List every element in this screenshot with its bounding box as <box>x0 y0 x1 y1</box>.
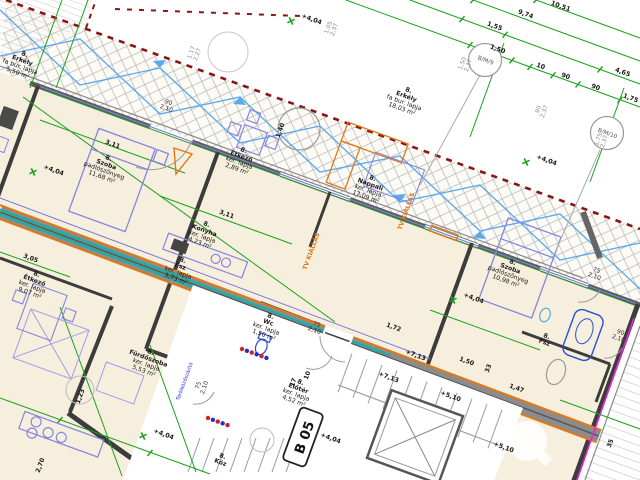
manifold-dot <box>216 419 220 423</box>
manifold-dot <box>225 423 229 427</box>
floor-plan-svg: B 05 8.Erkélyfa bur. lapja5,50 m²8.Erkél… <box>0 0 640 480</box>
manifold-dot <box>245 349 249 353</box>
manifold-dot <box>250 350 254 354</box>
manifold-dot <box>206 416 210 420</box>
floor-plan-canvas: B 05 8.Erkélyfa bur. lapja5,50 m²8.Erkél… <box>0 0 640 480</box>
manifold-dot <box>211 418 215 422</box>
manifold-dot <box>240 347 244 351</box>
manifold-dot <box>259 354 263 358</box>
manifold-dot <box>254 352 258 356</box>
manifold-dot <box>220 421 224 425</box>
manifold-dot <box>264 356 268 360</box>
